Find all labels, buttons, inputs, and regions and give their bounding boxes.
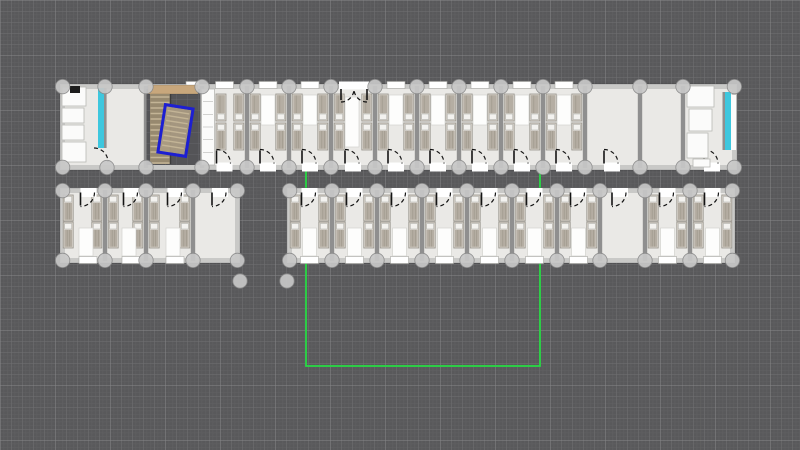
- window[interactable]: [346, 257, 364, 264]
- window[interactable]: [704, 257, 722, 264]
- pillow: [447, 125, 454, 131]
- wall-node-handle[interactable]: [55, 160, 69, 174]
- pillow: [410, 224, 417, 230]
- bed[interactable]: [292, 94, 302, 121]
- bed[interactable]: [722, 195, 732, 221]
- wall-node-handle[interactable]: [325, 253, 339, 267]
- wall-node-handle[interactable]: [324, 160, 338, 174]
- bed[interactable]: [335, 222, 345, 248]
- bed[interactable]: [108, 195, 118, 221]
- bed-blanket: [405, 95, 413, 113]
- bed[interactable]: [319, 222, 329, 248]
- bed-blanket: [277, 131, 285, 149]
- entrance-opening[interactable]: [339, 82, 369, 90]
- bed-blanket: [516, 203, 524, 220]
- pillow: [235, 125, 242, 131]
- bathroom-fixture[interactable]: [62, 108, 84, 123]
- wall-node-handle[interactable]: [324, 79, 338, 93]
- interior-wall[interactable]: [415, 86, 419, 168]
- bed[interactable]: [380, 195, 390, 221]
- floor-mat[interactable]: [79, 228, 93, 256]
- floor-mat[interactable]: [122, 228, 136, 256]
- wall-node-handle[interactable]: [282, 160, 296, 174]
- pillow: [405, 114, 412, 120]
- wall-node-handle[interactable]: [550, 253, 564, 267]
- wall-node-handle[interactable]: [633, 160, 647, 174]
- pillow: [573, 125, 580, 131]
- wall-node-handle[interactable]: [415, 183, 429, 197]
- floor-mat[interactable]: [431, 95, 445, 125]
- interior-wall[interactable]: [375, 190, 379, 261]
- bed[interactable]: [63, 222, 73, 248]
- interior-wall[interactable]: [373, 86, 377, 168]
- wall-node-handle[interactable]: [536, 79, 550, 93]
- bed-blanket: [505, 131, 513, 149]
- window[interactable]: [436, 257, 454, 264]
- bed[interactable]: [488, 123, 498, 150]
- bed-blanket: [694, 230, 702, 247]
- bed-blanket: [291, 203, 299, 220]
- floor-mat[interactable]: [438, 228, 452, 256]
- bed[interactable]: [587, 195, 597, 221]
- pillow: [181, 197, 188, 203]
- bed-blanket: [505, 95, 513, 113]
- bed[interactable]: [133, 195, 143, 221]
- pillow: [489, 125, 496, 131]
- floor-mat[interactable]: [661, 228, 675, 256]
- floor-mat[interactable]: [557, 95, 571, 125]
- window[interactable]: [555, 82, 573, 89]
- window[interactable]: [513, 82, 531, 89]
- bed[interactable]: [362, 123, 372, 150]
- wall-node-handle[interactable]: [505, 253, 519, 267]
- wall-node-handle[interactable]: [370, 253, 384, 267]
- bed[interactable]: [180, 195, 190, 221]
- bed[interactable]: [425, 222, 435, 248]
- bed[interactable]: [546, 123, 556, 150]
- bed[interactable]: [290, 195, 300, 221]
- floor-mat[interactable]: [303, 228, 317, 256]
- floor-mat[interactable]: [572, 228, 586, 256]
- interior-wall[interactable]: [457, 86, 461, 168]
- wall-node-handle[interactable]: [683, 183, 697, 197]
- pillow: [506, 125, 513, 131]
- interior-wall[interactable]: [330, 190, 334, 261]
- bed[interactable]: [180, 222, 190, 248]
- bed[interactable]: [648, 195, 658, 221]
- bed[interactable]: [515, 222, 525, 248]
- bed[interactable]: [504, 123, 514, 150]
- wall-node-handle[interactable]: [186, 183, 200, 197]
- bed-blanket: [235, 95, 243, 113]
- bed[interactable]: [648, 222, 658, 248]
- pillow: [650, 197, 657, 203]
- bed[interactable]: [404, 94, 414, 121]
- wall-node-handle[interactable]: [282, 253, 296, 267]
- floor-mat[interactable]: [393, 228, 407, 256]
- wall-node-handle[interactable]: [460, 183, 474, 197]
- wall-node-handle[interactable]: [139, 79, 153, 93]
- bed[interactable]: [334, 123, 344, 150]
- bed[interactable]: [364, 222, 374, 248]
- wall-node-handle[interactable]: [240, 79, 254, 93]
- interior-wall[interactable]: [245, 86, 249, 168]
- editor-viewport[interactable]: [0, 0, 800, 450]
- interior-wall[interactable]: [499, 86, 503, 168]
- wall-node-handle[interactable]: [368, 160, 382, 174]
- interior-wall[interactable]: [510, 190, 514, 261]
- bed[interactable]: [149, 222, 159, 248]
- wall-node-handle[interactable]: [55, 183, 69, 197]
- wall-node-handle[interactable]: [725, 253, 739, 267]
- wall-node-handle[interactable]: [280, 274, 294, 288]
- interior-wall[interactable]: [638, 86, 642, 168]
- bed[interactable]: [454, 222, 464, 248]
- bathroom-fixture[interactable]: [731, 95, 736, 150]
- bed-blanket: [109, 203, 117, 220]
- wall-node-handle[interactable]: [683, 253, 697, 267]
- bed[interactable]: [488, 94, 498, 121]
- water-feature[interactable]: [98, 88, 104, 148]
- selected-stair[interactable]: [158, 105, 193, 157]
- bed[interactable]: [234, 123, 244, 150]
- bed[interactable]: [92, 195, 102, 221]
- wall-node-handle[interactable]: [139, 160, 153, 174]
- bed[interactable]: [544, 195, 554, 221]
- bed[interactable]: [446, 94, 456, 121]
- pillow: [548, 125, 555, 131]
- window[interactable]: [391, 257, 409, 264]
- bed[interactable]: [572, 123, 582, 150]
- bed[interactable]: [216, 94, 226, 121]
- pillow: [292, 224, 299, 230]
- bed[interactable]: [378, 123, 388, 150]
- bed[interactable]: [409, 222, 419, 248]
- wall-node-handle[interactable]: [578, 79, 592, 93]
- bed[interactable]: [149, 195, 159, 221]
- bathroom-fixture[interactable]: [62, 142, 86, 162]
- wall-node-handle[interactable]: [370, 183, 384, 197]
- wall-node-handle[interactable]: [676, 79, 690, 93]
- interior-wall[interactable]: [598, 190, 602, 261]
- floor-mat[interactable]: [348, 228, 362, 256]
- bed[interactable]: [587, 222, 597, 248]
- stair-landing[interactable]: [148, 85, 198, 94]
- interior-wall[interactable]: [583, 86, 587, 168]
- wall-node-handle[interactable]: [282, 183, 296, 197]
- bed[interactable]: [335, 195, 345, 221]
- glass-partition-wall[interactable]: [723, 92, 726, 150]
- floorplan-canvas[interactable]: [0, 0, 800, 450]
- window[interactable]: [429, 82, 447, 89]
- bed[interactable]: [108, 222, 118, 248]
- bed-blanket: [471, 230, 479, 247]
- pillow: [573, 114, 580, 120]
- bed[interactable]: [216, 123, 226, 150]
- bed-blanket: [471, 203, 479, 220]
- wall-node-handle[interactable]: [638, 183, 652, 197]
- bed[interactable]: [276, 94, 286, 121]
- window[interactable]: [526, 257, 544, 264]
- bed-blanket: [217, 95, 225, 113]
- wall-node-handle[interactable]: [368, 79, 382, 93]
- bed[interactable]: [318, 123, 328, 150]
- interior-wall[interactable]: [555, 190, 559, 261]
- floor-mat[interactable]: [528, 228, 542, 256]
- bed[interactable]: [530, 94, 540, 121]
- wall-node-handle[interactable]: [98, 79, 112, 93]
- pillow: [382, 197, 389, 203]
- bed[interactable]: [504, 94, 514, 121]
- bed-blanket: [217, 131, 225, 149]
- bed[interactable]: [470, 195, 480, 221]
- pillow: [695, 197, 702, 203]
- bed[interactable]: [420, 123, 430, 150]
- pillow: [517, 224, 524, 230]
- bed[interactable]: [319, 195, 329, 221]
- window[interactable]: [166, 257, 184, 264]
- interior-wall[interactable]: [103, 190, 107, 261]
- bed[interactable]: [499, 222, 509, 248]
- bed[interactable]: [250, 123, 260, 150]
- window[interactable]: [471, 82, 489, 89]
- bed[interactable]: [560, 222, 570, 248]
- bed[interactable]: [380, 222, 390, 248]
- door-opening[interactable]: [217, 163, 233, 172]
- floor-mat[interactable]: [389, 95, 403, 125]
- bed[interactable]: [454, 195, 464, 221]
- interior-wall[interactable]: [688, 190, 692, 261]
- wardrobe[interactable]: [202, 89, 215, 165]
- wall-node-handle[interactable]: [452, 79, 466, 93]
- bed[interactable]: [318, 94, 328, 121]
- wall-node-handle[interactable]: [282, 79, 296, 93]
- bed-blanket: [381, 230, 389, 247]
- pillow: [545, 197, 552, 203]
- wall-node-handle[interactable]: [593, 183, 607, 197]
- bed-blanket: [500, 203, 508, 220]
- floor-mat[interactable]: [473, 95, 487, 125]
- bed[interactable]: [560, 195, 570, 221]
- pillow: [455, 197, 462, 203]
- bed-blanket: [649, 230, 657, 247]
- pillow: [294, 114, 301, 120]
- bed[interactable]: [677, 195, 687, 221]
- wall-node-handle[interactable]: [230, 183, 244, 197]
- wall-node-handle[interactable]: [536, 160, 550, 174]
- wall-node-handle[interactable]: [578, 160, 592, 174]
- wall-node-handle[interactable]: [633, 79, 647, 93]
- wall-node-handle[interactable]: [55, 79, 69, 93]
- wall-node-handle[interactable]: [240, 160, 254, 174]
- bed-blanket: [335, 95, 343, 113]
- bed-blanket: [93, 203, 101, 220]
- bathroom-fixture[interactable]: [62, 125, 84, 140]
- bathroom-fixture[interactable]: [693, 159, 710, 167]
- bed[interactable]: [276, 123, 286, 150]
- window[interactable]: [301, 82, 319, 89]
- interior-wall[interactable]: [287, 86, 291, 168]
- wall-node-handle[interactable]: [676, 160, 690, 174]
- bed[interactable]: [470, 222, 480, 248]
- wall-node-handle[interactable]: [55, 253, 69, 267]
- wall-node-handle[interactable]: [460, 253, 474, 267]
- bed-blanket: [545, 203, 553, 220]
- window[interactable]: [79, 257, 97, 264]
- window[interactable]: [301, 257, 319, 264]
- bed[interactable]: [404, 123, 414, 150]
- wall-node-handle[interactable]: [230, 253, 244, 267]
- bed[interactable]: [546, 94, 556, 121]
- bed[interactable]: [234, 94, 244, 121]
- bed-blanket: [531, 131, 539, 149]
- bed[interactable]: [544, 222, 554, 248]
- interior-wall[interactable]: [681, 86, 685, 168]
- bed[interactable]: [425, 195, 435, 221]
- wall-node-handle[interactable]: [494, 160, 508, 174]
- bed-blanket: [251, 131, 259, 149]
- pillow: [562, 224, 569, 230]
- wall-node-handle[interactable]: [410, 79, 424, 93]
- pillow: [500, 224, 507, 230]
- bed-blanket: [531, 95, 539, 113]
- door-opening[interactable]: [556, 163, 572, 172]
- bed-blanket: [547, 131, 555, 149]
- stove[interactable]: [70, 86, 80, 93]
- bed[interactable]: [446, 123, 456, 150]
- wall-node-handle[interactable]: [452, 160, 466, 174]
- bed-blanket: [363, 131, 371, 149]
- lobby-rug[interactable]: [345, 97, 359, 147]
- floor-mat[interactable]: [515, 95, 529, 125]
- bed-blanket: [291, 230, 299, 247]
- bed-blanket: [319, 131, 327, 149]
- door-opening[interactable]: [388, 163, 404, 172]
- bed[interactable]: [334, 94, 344, 121]
- bathroom-fixture[interactable]: [687, 133, 708, 158]
- water-feature[interactable]: [725, 92, 731, 150]
- window[interactable]: [122, 257, 140, 264]
- bed-blanket: [365, 203, 373, 220]
- window[interactable]: [259, 82, 277, 89]
- bed[interactable]: [515, 195, 525, 221]
- pillow: [472, 197, 479, 203]
- bathroom-fixture[interactable]: [689, 109, 712, 131]
- pillow: [380, 114, 387, 120]
- bed-blanket: [410, 203, 418, 220]
- bed-blanket: [320, 203, 328, 220]
- wall-node-handle[interactable]: [550, 183, 564, 197]
- wall-node-handle[interactable]: [593, 253, 607, 267]
- wall-node-handle[interactable]: [415, 253, 429, 267]
- wall-node-handle[interactable]: [195, 79, 209, 93]
- interior-wall[interactable]: [541, 86, 545, 168]
- wall-node-handle[interactable]: [505, 183, 519, 197]
- door-opening[interactable]: [514, 163, 530, 172]
- bed[interactable]: [378, 94, 388, 121]
- door-opening[interactable]: [472, 163, 488, 172]
- wall-node-handle[interactable]: [494, 79, 508, 93]
- floor-mat[interactable]: [166, 228, 180, 256]
- floor-mat[interactable]: [303, 95, 317, 125]
- bed[interactable]: [677, 222, 687, 248]
- interior-wall[interactable]: [465, 190, 469, 261]
- bed[interactable]: [722, 222, 732, 248]
- bathroom-fixture[interactable]: [687, 86, 714, 107]
- pillow: [464, 114, 471, 120]
- bed-blanket: [678, 203, 686, 220]
- floor-mat[interactable]: [706, 228, 720, 256]
- bed[interactable]: [364, 195, 374, 221]
- pillow: [151, 224, 158, 230]
- door-opening[interactable]: [604, 163, 620, 172]
- bed[interactable]: [572, 94, 582, 121]
- pillow: [337, 197, 344, 203]
- interior-wall[interactable]: [329, 86, 333, 168]
- bed[interactable]: [292, 123, 302, 150]
- window[interactable]: [387, 82, 405, 89]
- window[interactable]: [216, 82, 234, 89]
- bed[interactable]: [693, 195, 703, 221]
- wall-node-handle[interactable]: [98, 253, 112, 267]
- door-opening[interactable]: [345, 163, 361, 172]
- glass-partition-wall[interactable]: [104, 88, 107, 148]
- wall-node-handle[interactable]: [410, 160, 424, 174]
- floor-mat[interactable]: [483, 228, 497, 256]
- bed[interactable]: [250, 94, 260, 121]
- bed[interactable]: [693, 222, 703, 248]
- bottom-left-row[interactable]: [60, 188, 240, 264]
- door-opening[interactable]: [430, 163, 446, 172]
- bed[interactable]: [462, 123, 472, 150]
- wall-node-handle[interactable]: [186, 253, 200, 267]
- interior-wall[interactable]: [191, 190, 195, 261]
- wall-node-handle[interactable]: [325, 183, 339, 197]
- interior-wall[interactable]: [144, 190, 148, 261]
- interior-wall[interactable]: [420, 190, 424, 261]
- wall-node-handle[interactable]: [195, 160, 209, 174]
- bed-blanket: [93, 230, 101, 247]
- bed[interactable]: [63, 195, 73, 221]
- wall-node-handle[interactable]: [139, 253, 153, 267]
- bed[interactable]: [409, 195, 419, 221]
- wall-node-handle[interactable]: [98, 183, 112, 197]
- bottom-right-row[interactable]: [287, 188, 735, 264]
- door-opening[interactable]: [302, 163, 318, 172]
- bed-blanket: [109, 230, 117, 247]
- interior-wall[interactable]: [643, 190, 647, 261]
- wall-node-handle[interactable]: [100, 160, 114, 174]
- wall-node-handle[interactable]: [638, 253, 652, 267]
- window[interactable]: [570, 257, 588, 264]
- wall-node-handle[interactable]: [727, 79, 741, 93]
- wall-node-handle[interactable]: [727, 160, 741, 174]
- bed[interactable]: [530, 123, 540, 150]
- bed[interactable]: [290, 222, 300, 248]
- wall-node-handle[interactable]: [725, 183, 739, 197]
- bed[interactable]: [420, 94, 430, 121]
- bed[interactable]: [499, 195, 509, 221]
- window[interactable]: [659, 257, 677, 264]
- floor-mat[interactable]: [261, 95, 275, 125]
- pillow: [277, 114, 284, 120]
- door-opening[interactable]: [260, 163, 276, 172]
- pillow: [380, 125, 387, 131]
- wall-node-handle[interactable]: [233, 274, 247, 288]
- bed[interactable]: [462, 94, 472, 121]
- window[interactable]: [481, 257, 499, 264]
- wall-node-handle[interactable]: [139, 183, 153, 197]
